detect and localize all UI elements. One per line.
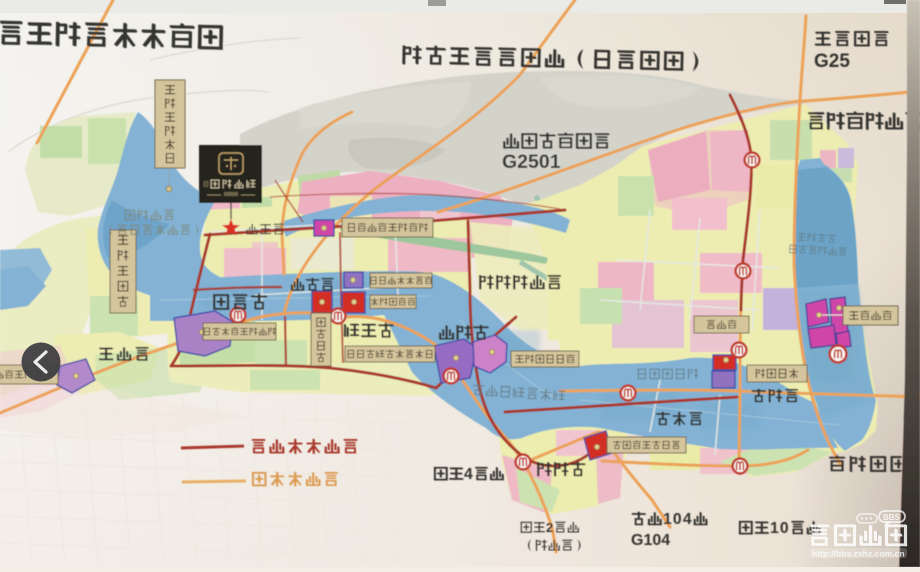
svg-text:BBS: BBS [883, 513, 901, 522]
svg-text:http://bbs.zxhz.com.cn: http://bbs.zxhz.com.cn [812, 549, 905, 559]
